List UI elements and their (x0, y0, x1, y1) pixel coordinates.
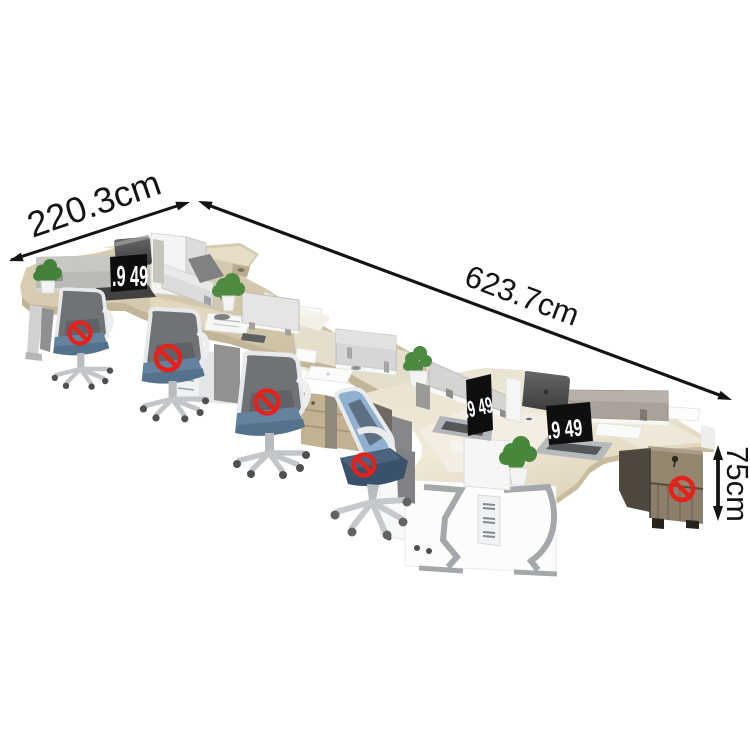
svg-text:.9 49: .9 49 (112, 260, 148, 292)
svg-text:75cm: 75cm (720, 446, 750, 522)
svg-text:.9 49: .9 49 (546, 415, 584, 445)
